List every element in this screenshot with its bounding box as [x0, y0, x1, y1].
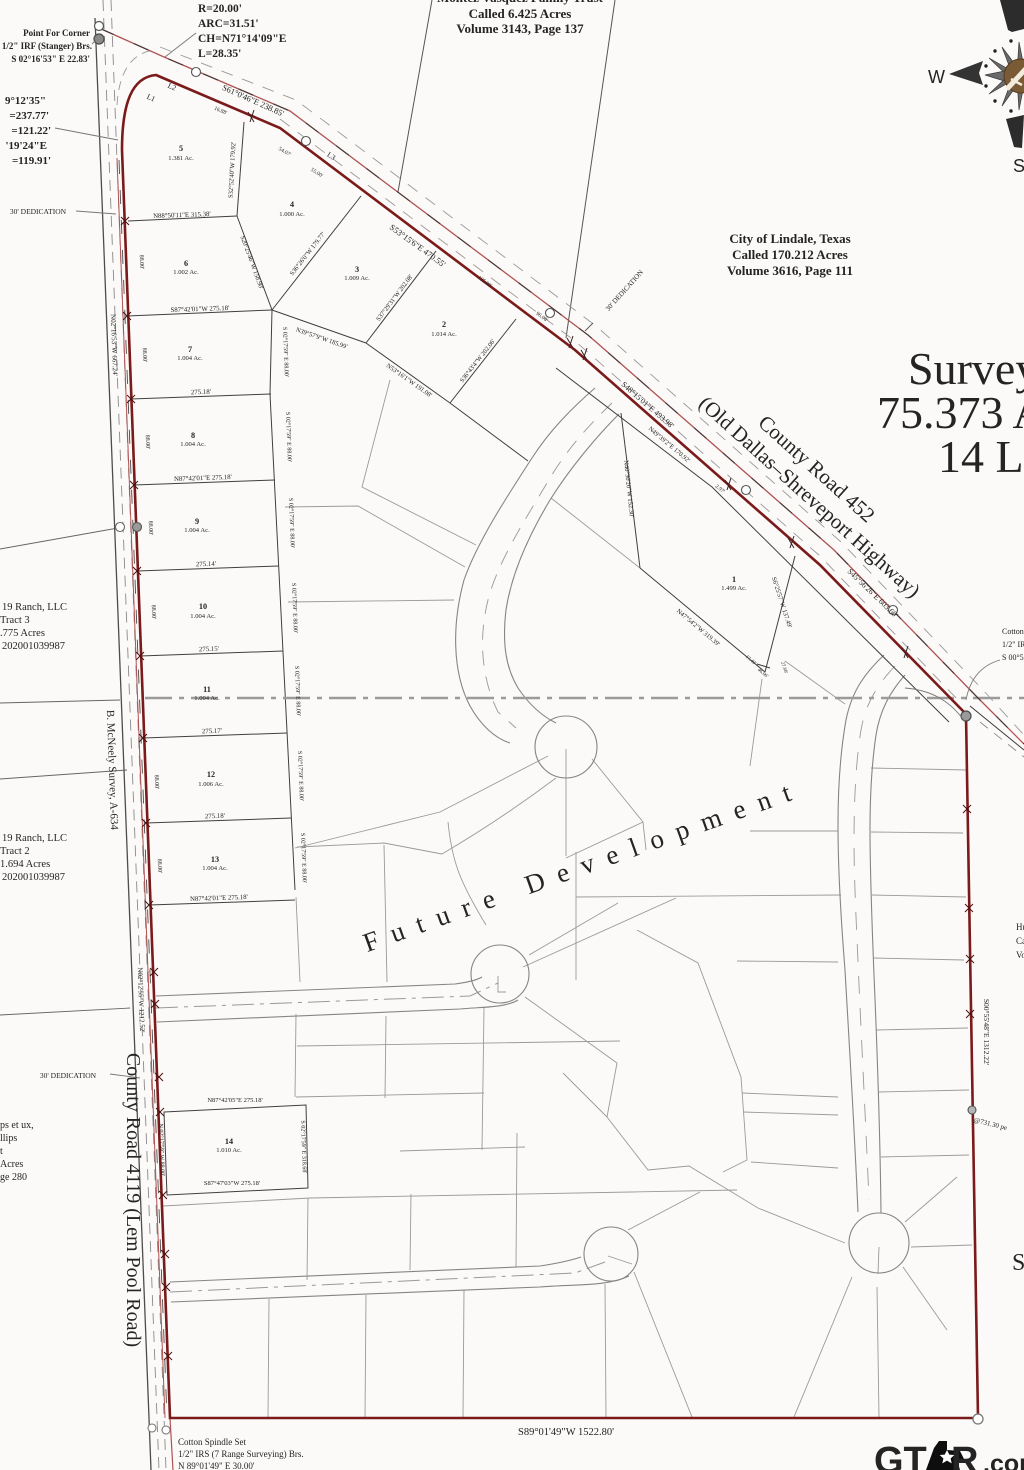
svg-text:3: 3 — [355, 265, 359, 274]
svg-text:1.014 Ac.: 1.014 Ac. — [431, 331, 457, 338]
svg-text:19 Ranch, LLC: 19 Ranch, LLC — [2, 602, 67, 613]
svg-text:=119.91': =119.91' — [12, 155, 51, 167]
svg-text:1.004 Ac.: 1.004 Ac. — [190, 613, 216, 620]
svg-text:ARC=31.51': ARC=31.51' — [198, 18, 259, 30]
svg-text:6: 6 — [184, 259, 188, 268]
svg-text:1.002 Ac.: 1.002 Ac. — [173, 269, 199, 276]
svg-text:.com: .com — [983, 1450, 1024, 1470]
svg-text:Tract 3: Tract 3 — [0, 615, 30, 626]
svg-text:14 Lots: 14 Lots — [938, 431, 1024, 482]
svg-text:1.694 Acres: 1.694 Acres — [0, 859, 50, 870]
svg-text:S 02°16'53" E 22.83': S 02°16'53" E 22.83' — [11, 54, 90, 64]
svg-text:88.00': 88.00' — [147, 521, 154, 536]
svg-text:88.00': 88.00' — [141, 348, 148, 363]
svg-text:9: 9 — [195, 517, 199, 526]
svg-text:Cotton Spindle Set: Cotton Spindle Set — [178, 1437, 247, 1447]
svg-text:ge 280: ge 280 — [0, 1172, 27, 1183]
svg-text:GT: GT — [874, 1440, 927, 1470]
svg-text:City of Lindale, Texas: City of Lindale, Texas — [729, 231, 850, 246]
svg-text:S87°47'03"W 275.18': S87°47'03"W 275.18' — [204, 1180, 260, 1187]
svg-text:1.009 Ac.: 1.009 Ac. — [344, 275, 370, 282]
svg-text:11: 11 — [203, 685, 211, 694]
svg-text:S: S — [1012, 1250, 1024, 1276]
svg-text:1: 1 — [732, 575, 736, 584]
svg-text:88.00': 88.00' — [156, 859, 163, 874]
svg-text:88.00': 88.00' — [138, 255, 145, 270]
svg-text:1.499 Ac.: 1.499 Ac. — [721, 585, 747, 592]
svg-text:=237.77': =237.77' — [9, 110, 49, 122]
svg-text:275.18': 275.18' — [191, 389, 211, 397]
svg-text:Montez Vasquez Family Trust: Montez Vasquez Family Trust — [437, 0, 604, 5]
svg-text:=121.22': =121.22' — [11, 125, 51, 137]
svg-text:Cotton Sp: Cotton Sp — [1002, 627, 1024, 636]
svg-text:1.004 Ac.: 1.004 Ac. — [202, 865, 228, 872]
svg-text:10: 10 — [199, 602, 207, 611]
svg-text:275.14': 275.14' — [196, 561, 216, 569]
svg-text:Called 6.425 Acres: Called 6.425 Acres — [469, 6, 572, 21]
svg-text:Tract 2: Tract 2 — [0, 846, 30, 857]
svg-text:CH=N71°14'09"E: CH=N71°14'09"E — [198, 33, 287, 45]
svg-text:4: 4 — [290, 200, 294, 209]
svg-text:19 Ranch, LLC: 19 Ranch, LLC — [2, 833, 67, 844]
svg-text:88.00': 88.00' — [153, 775, 160, 790]
svg-text:275.18': 275.18' — [205, 813, 225, 821]
svg-text:1.006 Ac.: 1.006 Ac. — [198, 781, 224, 788]
svg-text:.775 Acres: .775 Acres — [0, 628, 45, 639]
svg-text:Called 170.212 Acres: Called 170.212 Acres — [732, 247, 848, 262]
svg-text:9°12'35": 9°12'35" — [5, 95, 46, 107]
svg-text:1.004 Ac.: 1.004 Ac. — [194, 695, 220, 702]
svg-text:12: 12 — [207, 770, 215, 779]
svg-text:8: 8 — [191, 431, 195, 440]
svg-text:County Road 4119 (Lem Pool Ro: County Road 4119 (Lem Pool Road) — [122, 1053, 144, 1347]
svg-text:S: S — [1013, 156, 1024, 176]
svg-text:202001039987: 202001039987 — [2, 641, 65, 652]
svg-text:S89°01'49"W 1522.80': S89°01'49"W 1522.80' — [518, 1427, 614, 1438]
svg-text:1.010 Ac.: 1.010 Ac. — [216, 1147, 242, 1154]
svg-text:'19'24"E: '19'24"E — [5, 140, 47, 152]
svg-text:llips: llips — [0, 1133, 17, 1144]
svg-text:275.15': 275.15' — [199, 646, 219, 654]
svg-text:14: 14 — [225, 1137, 233, 1146]
svg-text:1/2" IRF (Stanger) Brs.: 1/2" IRF (Stanger) Brs. — [2, 41, 92, 51]
svg-text:1.000 Ac.: 1.000 Ac. — [279, 211, 305, 218]
svg-text:Point For Corner: Point For Corner — [23, 28, 90, 38]
svg-text:Ca: Ca — [1016, 936, 1024, 946]
svg-text:2: 2 — [442, 320, 446, 329]
svg-text:S00°55'48"E 1312.22': S00°55'48"E 1312.22' — [982, 999, 991, 1066]
svg-text:1.381 Ac.: 1.381 Ac. — [168, 155, 194, 162]
svg-text:R: R — [951, 1440, 978, 1470]
svg-text:N 89°01'49" E 30.00': N 89°01'49" E 30.00' — [178, 1461, 255, 1470]
svg-text:L=28.35': L=28.35' — [198, 48, 241, 60]
svg-text:S 00°55'4: S 00°55'4 — [1002, 653, 1024, 662]
svg-text:Acres: Acres — [0, 1159, 23, 1170]
svg-text:t: t — [0, 1146, 3, 1157]
svg-text:Volume 3143, Page 137: Volume 3143, Page 137 — [456, 21, 584, 36]
svg-text:ps et ux,: ps et ux, — [0, 1120, 34, 1131]
svg-text:1.004 Ac.: 1.004 Ac. — [180, 441, 206, 448]
svg-text:88.00': 88.00' — [144, 435, 151, 450]
svg-text:7: 7 — [188, 345, 192, 354]
svg-text:Hu: Hu — [1016, 922, 1024, 932]
svg-text:1/2" IRS (7 Range Surveying) B: 1/2" IRS (7 Range Surveying) Brs. — [178, 1449, 304, 1459]
svg-text:88.00': 88.00' — [150, 605, 157, 620]
svg-text:1.004 Ac.: 1.004 Ac. — [184, 527, 210, 534]
svg-text:Vo: Vo — [1016, 950, 1024, 960]
svg-text:N87°42'05"E 275.18': N87°42'05"E 275.18' — [207, 1097, 262, 1104]
svg-text:202001039987: 202001039987 — [2, 872, 65, 883]
svg-text:30' DEDICATION: 30' DEDICATION — [40, 1071, 97, 1080]
svg-text:13: 13 — [211, 855, 219, 864]
svg-text:R=20.00': R=20.00' — [198, 3, 242, 15]
svg-text:W: W — [928, 67, 945, 87]
svg-text:1/2" IRF: 1/2" IRF — [1002, 640, 1024, 649]
svg-text:30' DEDICATION: 30' DEDICATION — [10, 207, 67, 216]
svg-text:Volume 3616, Page 111: Volume 3616, Page 111 — [727, 263, 853, 278]
svg-text:275.17': 275.17' — [202, 728, 222, 736]
svg-text:5: 5 — [179, 144, 183, 153]
svg-text:1.004 Ac.: 1.004 Ac. — [177, 355, 203, 362]
